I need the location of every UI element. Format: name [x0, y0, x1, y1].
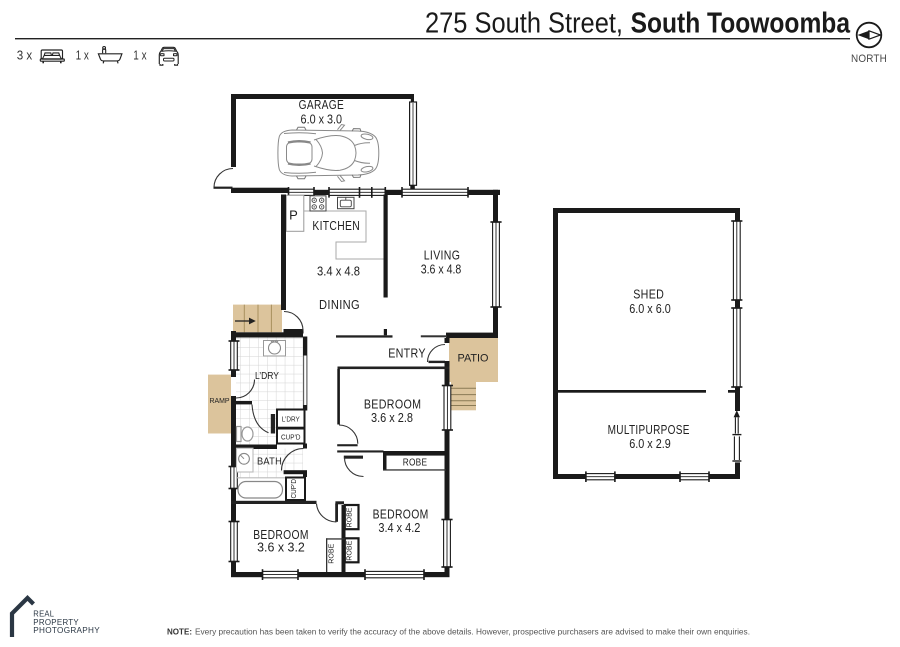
svg-text:NORTH: NORTH	[851, 53, 887, 65]
svg-text:6.0 x 3.0: 6.0 x 3.0	[301, 113, 343, 127]
svg-text:BATH: BATH	[257, 457, 282, 468]
svg-text:ROBE: ROBE	[403, 457, 428, 468]
svg-text:RAMP: RAMP	[210, 396, 230, 405]
svg-text:ENTRY: ENTRY	[388, 346, 426, 360]
svg-text:CUP’D: CUP’D	[281, 433, 301, 442]
svg-text:MULTIPURPOSE: MULTIPURPOSE	[608, 423, 690, 437]
svg-text:3.6 x 4.8: 3.6 x 4.8	[421, 262, 462, 276]
svg-text:3 x: 3 x	[17, 48, 33, 63]
svg-text:275 South Street,: 275 South Street,	[425, 7, 623, 39]
svg-text:GARAGE: GARAGE	[299, 98, 345, 112]
svg-text:BEDROOM: BEDROOM	[373, 508, 429, 522]
svg-text:Every precaution has been take: Every precaution has been taken to verif…	[195, 627, 750, 636]
svg-text:6.0 x 6.0: 6.0 x 6.0	[629, 302, 671, 316]
svg-text:3.4 x 4.2: 3.4 x 4.2	[378, 521, 420, 535]
svg-text:3.4 x 4.8: 3.4 x 4.8	[317, 265, 360, 279]
svg-text:South Toowoomba: South Toowoomba	[631, 7, 851, 39]
svg-text:ROBE: ROBE	[345, 508, 354, 528]
svg-text:LIVING: LIVING	[424, 248, 461, 262]
svg-text:P: P	[289, 208, 298, 223]
svg-text:1 x: 1 x	[133, 48, 147, 63]
svg-text:3.6 x 3.2: 3.6 x 3.2	[257, 540, 305, 554]
svg-text:DINING: DINING	[319, 298, 360, 312]
svg-text:NOTE:: NOTE:	[167, 627, 192, 636]
svg-text:L’DRY: L’DRY	[255, 371, 279, 382]
svg-text:L’DRY: L’DRY	[282, 415, 300, 424]
svg-text:SHED: SHED	[633, 288, 664, 302]
svg-text:1 x: 1 x	[76, 48, 90, 63]
svg-text:PATIO: PATIO	[458, 353, 489, 365]
svg-text:PHOTOGRAPHY: PHOTOGRAPHY	[33, 625, 100, 635]
svg-text:KITCHEN: KITCHEN	[312, 219, 360, 233]
svg-text:3.6 x 2.8: 3.6 x 2.8	[371, 411, 413, 425]
svg-text:ROBE: ROBE	[345, 541, 354, 561]
svg-text:CUP’D: CUP’D	[289, 479, 298, 499]
svg-text:ROBE: ROBE	[327, 544, 336, 564]
svg-text:BEDROOM: BEDROOM	[364, 397, 422, 411]
svg-text:6.0 x 2.9: 6.0 x 2.9	[629, 437, 671, 451]
